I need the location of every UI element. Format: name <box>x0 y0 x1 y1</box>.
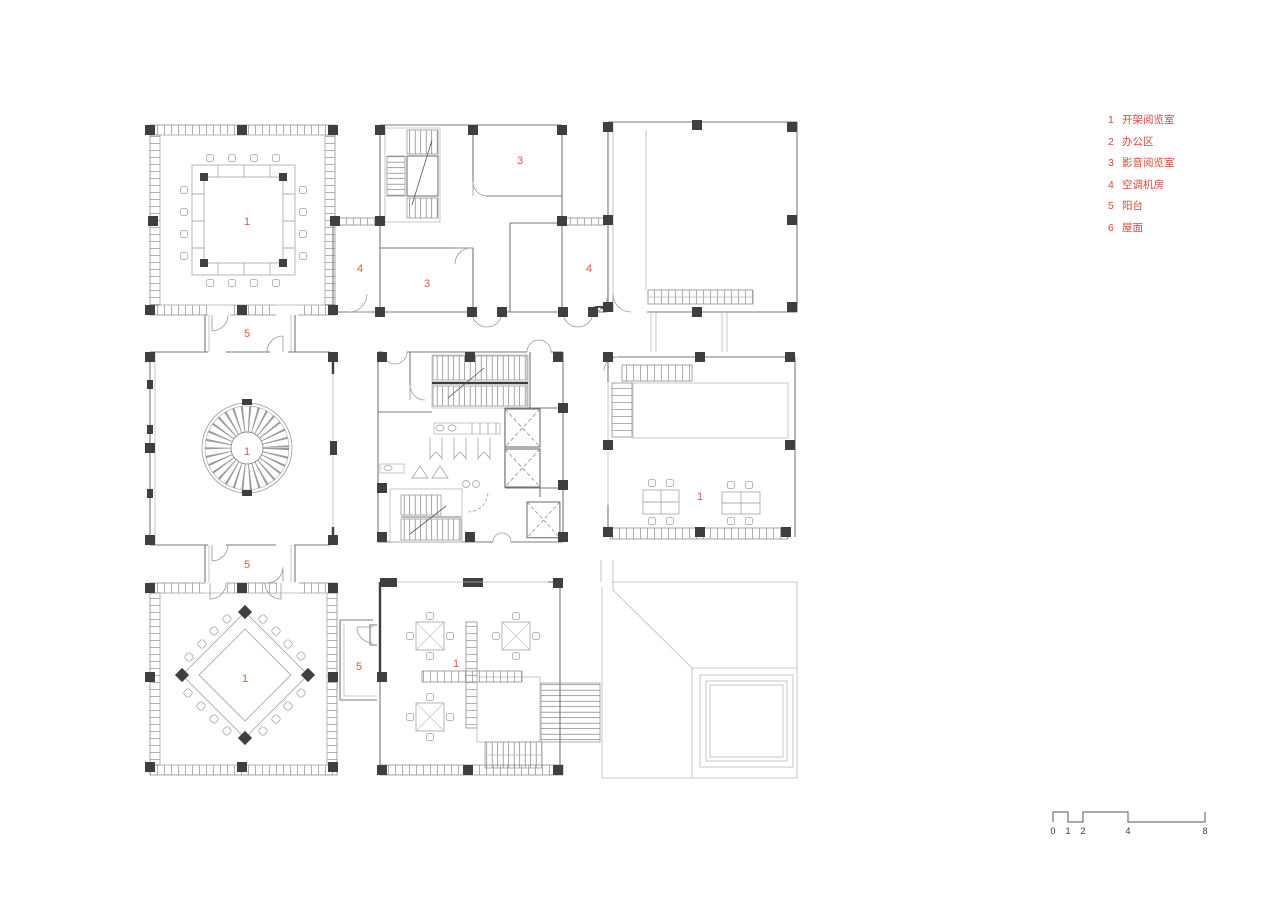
scale-tick-1: 1 <box>1065 826 1070 836</box>
legend-label: 影音阅览室 <box>1122 157 1175 169</box>
room-label-balcony-lower: 5 <box>356 661 362 673</box>
block-av-rooms <box>330 125 610 327</box>
room-label-reading-sw: 1 <box>242 673 248 685</box>
block-reading-east <box>604 357 795 539</box>
room-label-reading-south: 1 <box>453 658 459 670</box>
legend-item-5: 5阳台 <box>1108 196 1175 218</box>
scale-tick-2: 2 <box>1080 826 1085 836</box>
legend-item-4: 4空调机房 <box>1108 175 1175 197</box>
scale-tick-0: 0 <box>1050 826 1055 836</box>
room-label-balcony-upper: 5 <box>244 328 250 340</box>
floor-plan-sheet: 1 3 4 3 4 5 1 5 1 1 5 1 0 1 2 4 8 1开架阅览室… <box>0 0 1280 904</box>
legend-num: 2 <box>1108 132 1122 154</box>
block-central-core <box>378 340 563 542</box>
room-label-ac-right: 4 <box>586 263 592 275</box>
room-label-av-lower: 3 <box>424 278 430 290</box>
room-label-spiral: 1 <box>244 446 250 458</box>
legend-label: 开架阅览室 <box>1122 114 1175 126</box>
legend: 1开架阅览室 2办公区 3影音阅览室 4空调机房 5阳台 6屋面 <box>1108 110 1175 239</box>
legend-num: 4 <box>1108 175 1122 197</box>
room-label-reading-east: 1 <box>697 491 703 503</box>
legend-item-1: 1开架阅览室 <box>1108 110 1175 132</box>
room-label-balcony-middle: 5 <box>244 559 250 571</box>
block-roof-se <box>601 560 797 778</box>
scale-bar: 0 1 2 4 8 <box>1050 812 1207 836</box>
legend-item-6: 6屋面 <box>1108 218 1175 240</box>
legend-label: 办公区 <box>1122 136 1154 148</box>
scale-tick-8: 8 <box>1202 826 1207 836</box>
legend-num: 1 <box>1108 110 1122 132</box>
room-label-av-upper: 3 <box>517 155 523 167</box>
legend-num: 5 <box>1108 196 1122 218</box>
legend-label: 阳台 <box>1122 200 1143 212</box>
room-number-labels: 1 3 4 3 4 5 1 5 1 1 5 1 <box>242 155 703 685</box>
room-label-ac-left: 4 <box>357 263 363 275</box>
legend-num: 3 <box>1108 153 1122 175</box>
scale-tick-4: 4 <box>1125 826 1130 836</box>
legend-item-2: 2办公区 <box>1108 132 1175 154</box>
legend-label: 空调机房 <box>1122 179 1164 191</box>
room-label-reading-nw: 1 <box>244 216 250 228</box>
floor-plan-canvas: 1 3 4 3 4 5 1 5 1 1 5 1 0 1 2 4 8 <box>0 0 1280 904</box>
legend-label: 屋面 <box>1122 222 1143 234</box>
legend-item-3: 3影音阅览室 <box>1108 153 1175 175</box>
block-reading-room-nw <box>150 125 335 316</box>
block-room-ne <box>608 122 797 352</box>
block-spiral-reading <box>147 352 337 545</box>
ac-plant-rooms <box>333 218 605 312</box>
legend-num: 6 <box>1108 218 1122 240</box>
